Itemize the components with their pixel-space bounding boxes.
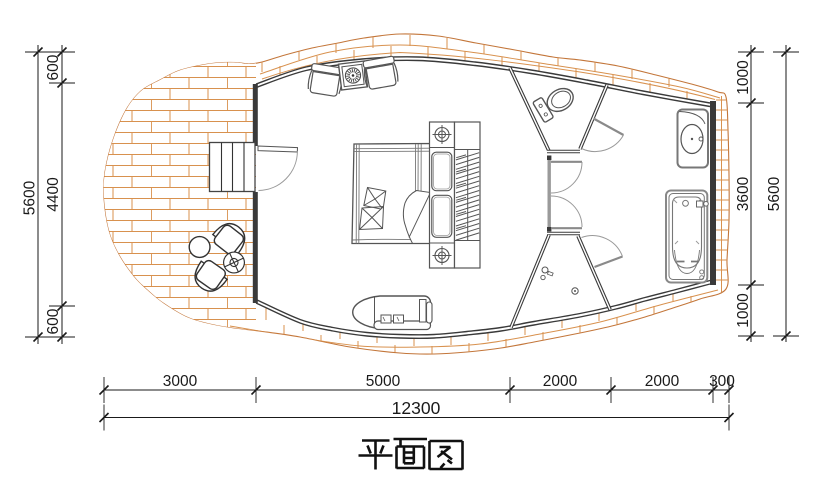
svg-text:600: 600 — [45, 308, 62, 334]
svg-text:600: 600 — [45, 54, 62, 80]
svg-text:1000: 1000 — [735, 293, 752, 328]
svg-text:5600: 5600 — [766, 176, 783, 211]
svg-text:3600: 3600 — [735, 176, 752, 211]
svg-text:1000: 1000 — [735, 60, 752, 95]
svg-text:5600: 5600 — [22, 180, 39, 215]
svg-text:5000: 5000 — [366, 373, 401, 390]
svg-text:2000: 2000 — [645, 373, 680, 390]
svg-text:2000: 2000 — [543, 373, 578, 390]
svg-text:12300: 12300 — [392, 398, 441, 418]
svg-text:4400: 4400 — [45, 177, 62, 212]
svg-text:3000: 3000 — [163, 373, 198, 390]
svg-text:300: 300 — [709, 373, 735, 390]
